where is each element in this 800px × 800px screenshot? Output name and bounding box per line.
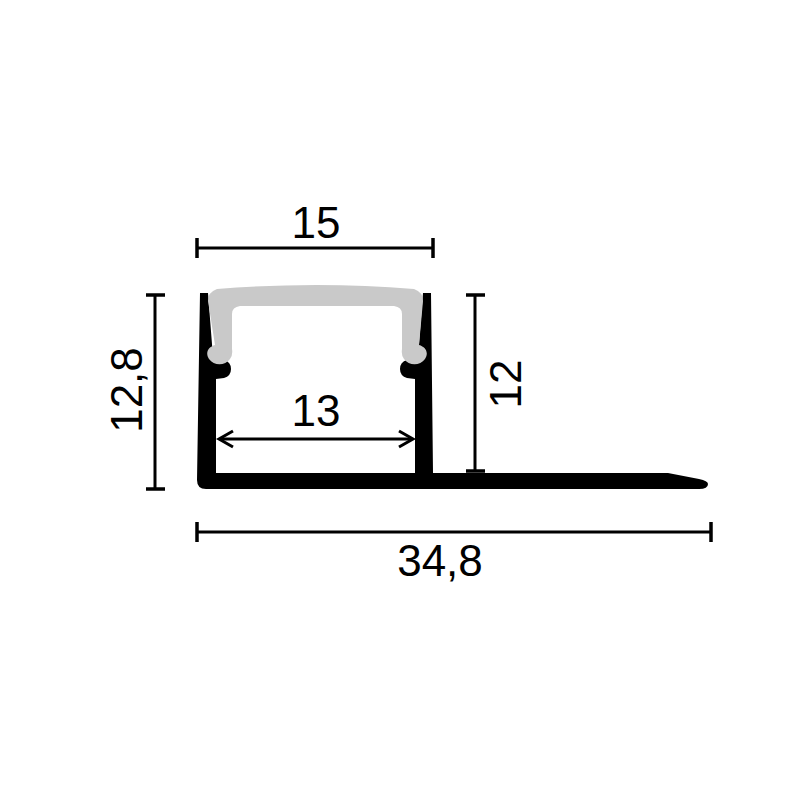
dimension-label-top-width: 15 [292, 201, 341, 245]
dimension-label-total-width: 34,8 [397, 539, 483, 583]
profile-body-shape [197, 293, 708, 489]
dimension-label-height-right: 12 [484, 360, 528, 409]
dimension-label-inner-width: 13 [292, 389, 341, 433]
diffuser-cover-shape [207, 285, 427, 364]
dimension-label-height-left: 12,8 [105, 347, 149, 433]
technical-drawing-canvas: 15 13 12,8 12 34,8 [0, 0, 800, 800]
